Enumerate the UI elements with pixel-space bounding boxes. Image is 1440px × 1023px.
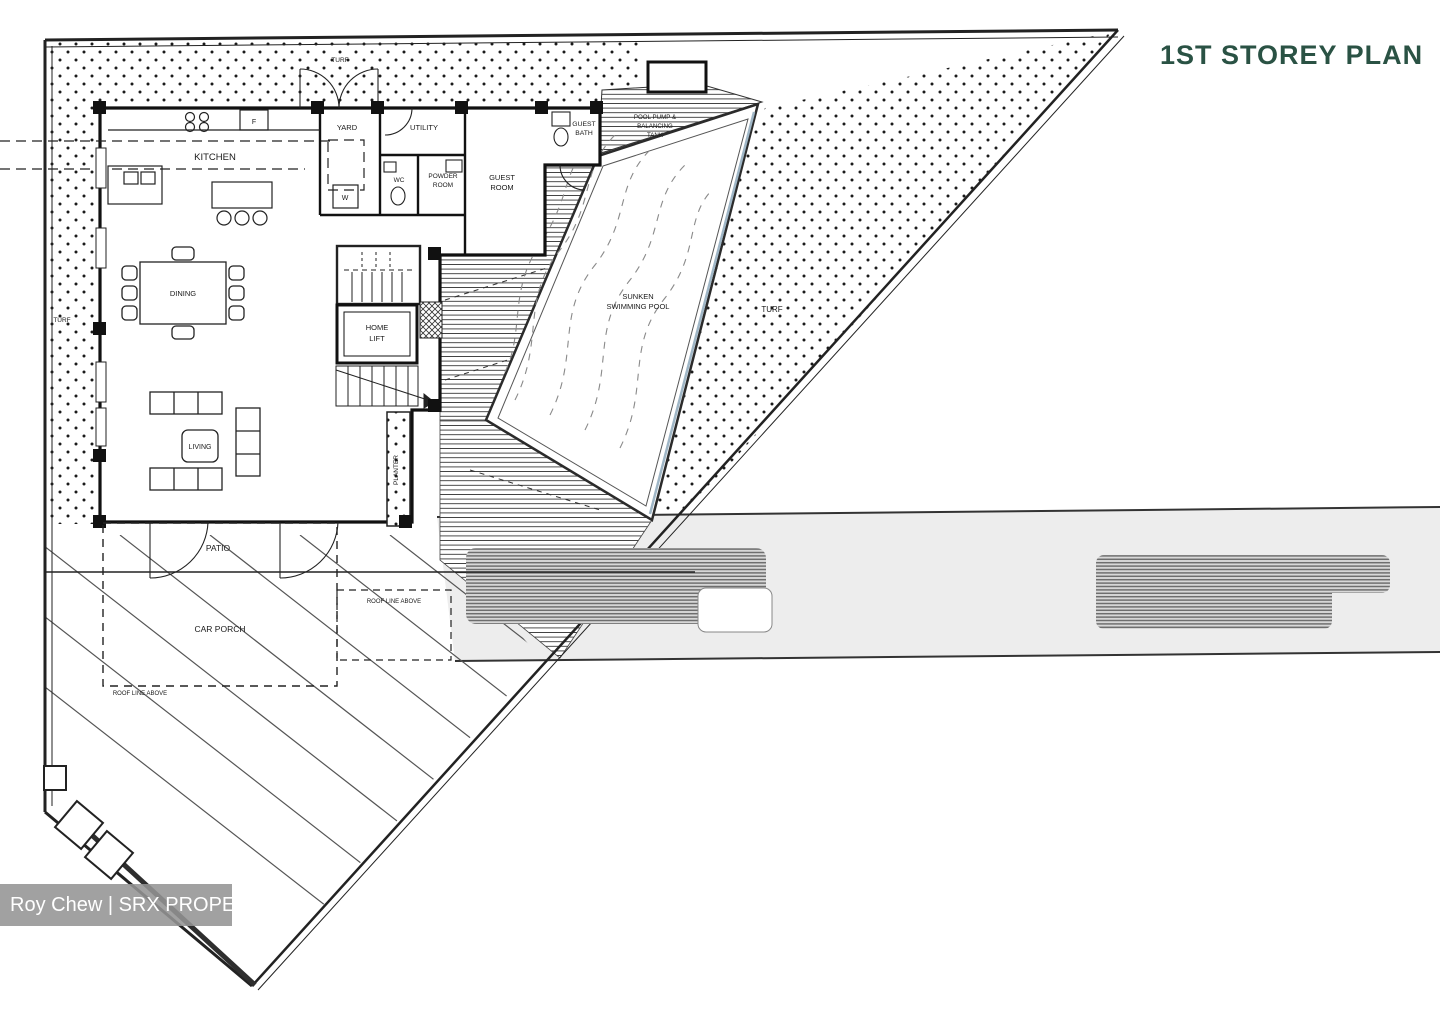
fridge-label: F bbox=[252, 119, 256, 126]
car-porch-label: CAR PORCH bbox=[194, 624, 245, 634]
kitchen-label: KITCHEN bbox=[194, 152, 236, 163]
pool-label-1: SUNKEN bbox=[622, 292, 653, 301]
shaft-void bbox=[420, 302, 442, 338]
home-lift-label-1: HOME bbox=[366, 323, 389, 332]
roof-line-label-2: ROOF LINE ABOVE bbox=[113, 691, 167, 697]
powder-room-label-2: ROOM bbox=[433, 182, 453, 189]
wc-label: WC bbox=[394, 177, 405, 184]
utility-label: UTILITY bbox=[410, 123, 438, 132]
dining-label: DINING bbox=[170, 289, 196, 298]
roof-line-label-1: ROOF LINE ABOVE bbox=[367, 599, 421, 605]
yard-label: YARD bbox=[337, 123, 358, 132]
pool-pump-label-3: TANK bbox=[647, 132, 664, 139]
turf-top-label: TURF bbox=[331, 57, 348, 64]
powder-room-label-1: POWDER bbox=[428, 173, 458, 180]
floor-plan-drawing: KITCHEN YARD UTILITY WC POWDER ROOM GUES… bbox=[0, 0, 1440, 1023]
watermark-badge: Roy Chew | SRX PROPERTY bbox=[0, 884, 232, 926]
pool-pump-label-2: BALANCING bbox=[637, 123, 673, 130]
floor-plan-page: KITCHEN YARD UTILITY WC POWDER ROOM GUES… bbox=[0, 0, 1440, 1023]
patio-label: PATIO bbox=[206, 543, 231, 553]
guest-room-label-2: ROOM bbox=[490, 183, 513, 192]
guest-bath-label-1: GUEST bbox=[572, 121, 595, 128]
guest-bath-label-2: BATH bbox=[575, 130, 593, 137]
turf-left-label: TURF bbox=[53, 317, 70, 324]
planter-label: PLANTER bbox=[393, 455, 400, 485]
pool-pump-label-1: POOL PUMP & bbox=[634, 114, 677, 121]
turf-right-label: TURF bbox=[761, 305, 782, 314]
pool-label-2: SWIMMING POOL bbox=[607, 302, 670, 311]
washer-label: W bbox=[342, 195, 349, 202]
home-lift-label-2: LIFT bbox=[369, 334, 385, 343]
living-label: LIVING bbox=[189, 444, 212, 451]
guest-room-label-1: GUEST bbox=[489, 173, 515, 182]
page-title: 1ST STOREY PLAN bbox=[1160, 40, 1430, 71]
